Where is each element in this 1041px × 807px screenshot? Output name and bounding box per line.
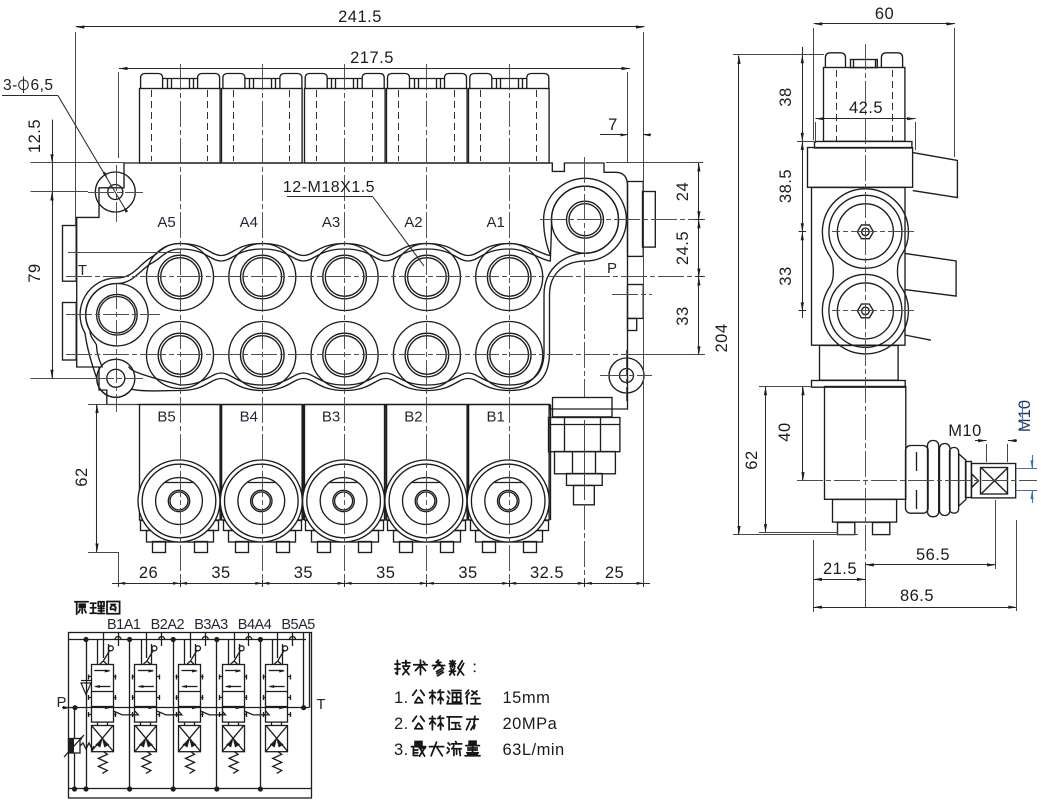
svg-text:60: 60 <box>875 5 894 23</box>
svg-text:33: 33 <box>777 266 795 285</box>
svg-text:7: 7 <box>608 116 618 134</box>
svg-text:A4: A4 <box>240 214 258 231</box>
svg-text:35: 35 <box>376 564 395 582</box>
svg-text:A1: A1 <box>487 214 505 231</box>
svg-text:35: 35 <box>294 564 313 582</box>
svg-text:B1: B1 <box>487 409 505 426</box>
svg-text:241.5: 241.5 <box>338 8 382 26</box>
svg-text:56.5: 56.5 <box>916 546 950 564</box>
svg-text:B4: B4 <box>240 409 258 426</box>
svg-text:T: T <box>78 262 87 279</box>
svg-text:B2A2: B2A2 <box>151 617 185 633</box>
svg-text:T: T <box>316 696 325 713</box>
svg-text:38.5: 38.5 <box>777 169 795 203</box>
svg-text:63L/min: 63L/min <box>503 741 565 759</box>
svg-text:79: 79 <box>26 263 44 282</box>
svg-text:62: 62 <box>743 450 761 469</box>
svg-text:M10: M10 <box>948 422 982 440</box>
svg-text:B2: B2 <box>404 409 422 426</box>
svg-text:12.5: 12.5 <box>26 119 44 153</box>
svg-text:6,5: 6,5 <box>31 77 54 94</box>
svg-text:B3: B3 <box>322 409 340 426</box>
svg-text:21.5: 21.5 <box>823 560 857 578</box>
svg-text:3.: 3. <box>394 741 409 759</box>
svg-text:B5A5: B5A5 <box>281 617 315 633</box>
svg-text:A3: A3 <box>322 214 340 231</box>
svg-text:32.5: 32.5 <box>530 564 564 582</box>
svg-text:B5: B5 <box>157 409 175 426</box>
svg-text:35: 35 <box>211 564 230 582</box>
svg-text:P: P <box>607 260 617 277</box>
svg-text:B3A3: B3A3 <box>194 617 228 633</box>
svg-text:B1A1: B1A1 <box>107 617 141 633</box>
svg-text:12-M18X1.5: 12-M18X1.5 <box>283 179 375 196</box>
svg-text:204: 204 <box>713 323 731 352</box>
svg-text:62: 62 <box>73 467 91 486</box>
svg-text:26: 26 <box>139 564 158 582</box>
svg-text:20MPa: 20MPa <box>503 715 558 733</box>
svg-text:35: 35 <box>458 564 477 582</box>
svg-text:15mm: 15mm <box>503 689 551 707</box>
svg-text:M10: M10 <box>1016 400 1034 432</box>
svg-text:25: 25 <box>605 564 624 582</box>
svg-text:42.5: 42.5 <box>849 99 883 117</box>
svg-text:24.5: 24.5 <box>674 231 692 265</box>
svg-text:33: 33 <box>674 306 692 325</box>
svg-text:24: 24 <box>674 182 692 201</box>
svg-text:A2: A2 <box>404 214 422 231</box>
svg-text:A5: A5 <box>157 214 175 231</box>
svg-text:B4A4: B4A4 <box>238 617 272 633</box>
svg-text:86.5: 86.5 <box>900 587 934 605</box>
svg-text:1.: 1. <box>394 689 409 707</box>
svg-text:40: 40 <box>776 422 794 441</box>
svg-text:38: 38 <box>777 87 795 106</box>
svg-text:3-: 3- <box>3 77 18 94</box>
svg-text:217.5: 217.5 <box>350 49 394 67</box>
svg-text:2.: 2. <box>394 715 409 733</box>
